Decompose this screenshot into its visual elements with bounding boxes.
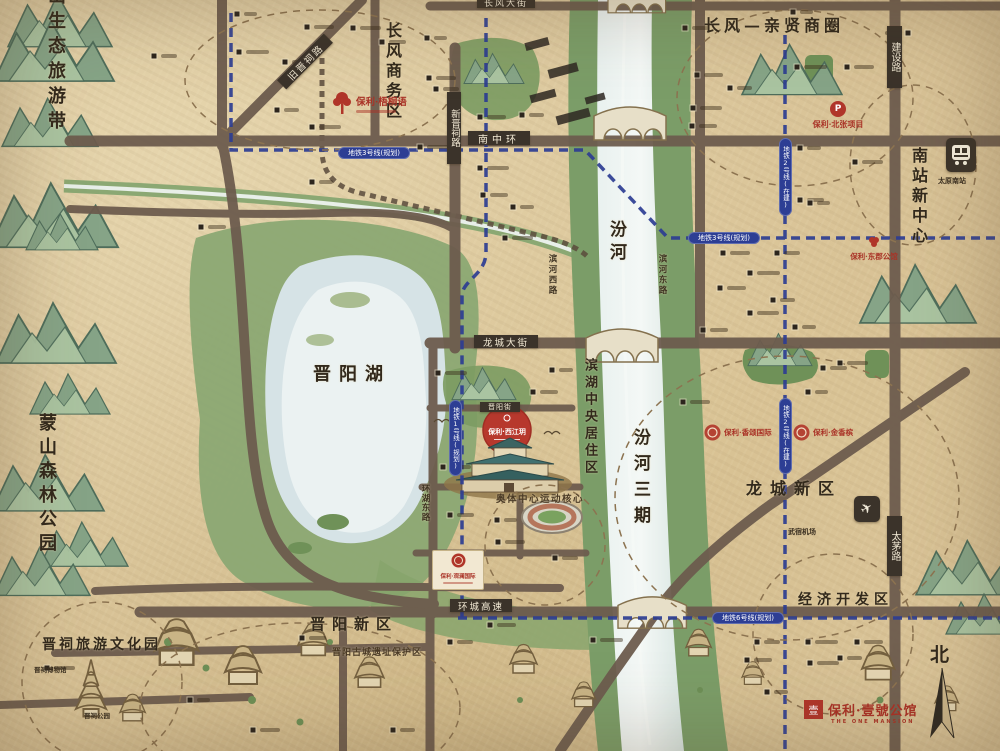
region-label-jinyang-lake: 晋阳湖: [313, 360, 391, 386]
airplane-glyph: ✈: [858, 499, 876, 519]
project-beizhang: P 保利·北张项目: [790, 96, 886, 130]
compass-north-label: 北: [930, 640, 949, 667]
region-label-sports-center-core: 奥体中心运动核心: [496, 491, 584, 505]
poi-label-wusu-airport: 武宿机场: [788, 527, 816, 537]
project-yihao: 壹 保利·壹號公馆 THE ONE MANSION: [804, 700, 918, 725]
road-label-south-central-ring: 南中环: [468, 131, 530, 145]
project-guanlan-subtext-smudge: [443, 582, 473, 584]
road-label-taimao-road: 太茅路: [887, 516, 902, 576]
region-label-fen-river-phase3: 汾河三期: [628, 428, 653, 532]
project-wutongyu-subtext-smudge: [356, 110, 396, 113]
road-label-longcheng-street: 龙城大街: [474, 335, 538, 348]
metro-label-line2-north: 地铁2号线(在建): [779, 138, 792, 216]
region-label-fen-river: 汾河: [604, 220, 629, 266]
train-station-icon: [946, 138, 976, 172]
metro-label-line3-east: 地铁3号线(规划): [688, 232, 760, 244]
beizhang-p-icon: P: [830, 101, 846, 117]
region-label-changfeng-qinxian-circle: 长风—亲贤商圈: [704, 12, 844, 36]
poi-label-taiyuan-south-station: 太原南站: [938, 176, 966, 186]
compass-arrow-icon: [922, 668, 962, 746]
project-guanlan-name: 保利·观澜国际: [433, 572, 483, 580]
region-label-west-eco-belt: 山生态旅游带: [42, 0, 68, 136]
project-dongjun-name: 保利·东郡公馆: [826, 251, 922, 262]
project-yihao-name: 保利·壹號公馆: [828, 700, 918, 719]
poi-label-jinci-museum: 晋祠博物馆: [34, 664, 67, 674]
road-label-xin-jinci-road: 新晋祠路: [447, 92, 461, 164]
xiangsong-seal-icon: [704, 424, 721, 441]
road-label-changfeng-street: 长风大街: [477, 0, 535, 8]
project-xiangsong-name: 保利·香颂国际: [724, 427, 772, 438]
metro-label-line2-south: 地铁2号线(在建): [779, 398, 792, 474]
project-guanlan: 保利·观澜国际: [432, 550, 484, 590]
guanlan-seal-icon: [451, 553, 466, 568]
project-jinxiangbin-name: 保利·金香槟: [813, 427, 853, 438]
metro-label-line3-west: 地铁3号线(规划): [338, 147, 410, 159]
metro-label-line1: 地铁1号线(规划): [449, 400, 462, 476]
project-xiangsong: 保利·香颂国际: [704, 424, 772, 441]
road-label-binhe-west-road: 滨河西路: [546, 254, 558, 296]
road-label-jinyang-street: 晋阳街: [480, 402, 520, 412]
road-label-binhe-east-road: 滨河东路: [656, 254, 668, 296]
road-label-huanhu-east-road: 环湖东路: [419, 484, 431, 522]
label-layer: 山生态旅游带 蒙山森林公园 长风商务区 长风—亲贤商圈 南站新中心 汾河 汾河三…: [0, 0, 1000, 751]
poi-label-jinci-park: 晋祠公园: [84, 710, 110, 720]
train-glyph: [949, 142, 973, 168]
project-jinxiangbin: 保利·金香槟: [793, 424, 853, 441]
airport-icon: ✈: [854, 496, 880, 522]
region-label-jinyang-ancient-city-ruins: 晋阳古城遗址保护区: [332, 645, 422, 658]
compass: 北: [920, 640, 968, 750]
dongjun-crest-icon: [868, 236, 880, 247]
region-label-jinci-tourism-culture-park: 晋祠旅游文化园: [42, 634, 161, 654]
poly-taiyuan-region-map: 保利·西江玥: [0, 0, 1000, 751]
project-beizhang-name: 保利·北张项目: [790, 119, 886, 130]
region-label-economic-dev-zone: 经济开发区: [798, 589, 893, 609]
region-label-longcheng-new-district: 龙城新区: [746, 475, 842, 499]
region-label-jinyang-new-district: 晋阳新区: [310, 613, 398, 634]
region-label-binhu-central-residence: 滨湖中央居住区: [580, 358, 599, 477]
metro-label-line6: 地铁6号线(规划): [712, 612, 784, 624]
road-label-ring-expressway: 环城高速: [450, 599, 512, 612]
jinxiangbin-seal-icon: [793, 424, 810, 441]
project-yihao-sub: THE ONE MANSION: [828, 719, 918, 725]
road-label-jiu-jinci-road: 旧晋祠路: [277, 34, 333, 90]
project-wutongyu-name: 保利·梧桐语: [356, 94, 407, 108]
road-label-jianshe-road: 建设路: [887, 26, 902, 88]
region-label-mengshan-forest-park: 蒙山森林公园: [33, 413, 59, 557]
wutongyu-tree-icon: [332, 90, 352, 116]
yihao-seal-icon: 壹: [804, 700, 823, 719]
project-dongjun: 保利·东郡公馆: [826, 232, 922, 262]
project-wutongyu: 保利·梧桐语: [332, 90, 407, 116]
